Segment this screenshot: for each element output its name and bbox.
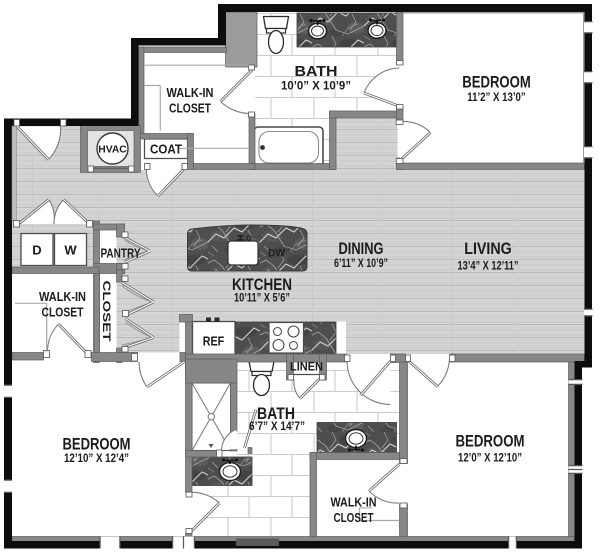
svg-text:10’0” X 10’9”: 10’0” X 10’9” bbox=[281, 81, 351, 93]
svg-text:WALK-IN: WALK-IN bbox=[39, 289, 86, 304]
svg-text:WALK-IN: WALK-IN bbox=[167, 85, 214, 100]
svg-text:11’2” X 13’0”: 11’2” X 13’0” bbox=[467, 90, 526, 104]
svg-text:DW: DW bbox=[268, 248, 286, 260]
svg-text:CLOSET: CLOSET bbox=[42, 305, 84, 320]
svg-text:COAT: COAT bbox=[150, 143, 182, 157]
svg-text:D: D bbox=[32, 243, 41, 258]
svg-text:W: W bbox=[64, 243, 77, 258]
svg-text:BEDROOM: BEDROOM bbox=[456, 432, 525, 451]
svg-text:12’10” X 12’4”: 12’10” X 12’4” bbox=[64, 453, 129, 465]
svg-text:BEDROOM: BEDROOM bbox=[462, 73, 531, 92]
svg-text:6’11” X 10’9”: 6’11” X 10’9” bbox=[334, 258, 388, 270]
svg-text:12’0” X 12’10”: 12’0” X 12’10” bbox=[458, 453, 522, 465]
svg-text:CLOSET: CLOSET bbox=[334, 510, 374, 525]
svg-text:CLOSET: CLOSET bbox=[100, 281, 112, 342]
svg-text:PANTRY: PANTRY bbox=[101, 246, 141, 261]
svg-text:LINEN: LINEN bbox=[290, 360, 323, 374]
svg-text:DINING: DINING bbox=[339, 240, 384, 258]
svg-text:6’7” X 14’7”: 6’7” X 14’7” bbox=[249, 421, 305, 433]
svg-text:BEDROOM: BEDROOM bbox=[63, 435, 131, 454]
svg-text:LIVING: LIVING bbox=[464, 240, 512, 258]
svg-text:13’4” X 12’11”: 13’4” X 12’11” bbox=[458, 261, 519, 273]
svg-text:WALK-IN: WALK-IN bbox=[331, 495, 377, 510]
svg-text:REF: REF bbox=[203, 335, 225, 349]
svg-text:10’11” X 5’6”: 10’11” X 5’6” bbox=[234, 293, 290, 305]
svg-text:BATH: BATH bbox=[295, 63, 338, 80]
svg-text:CLOSET: CLOSET bbox=[169, 101, 211, 116]
svg-text:HVAC: HVAC bbox=[98, 144, 127, 156]
svg-text:KITCHEN: KITCHEN bbox=[232, 276, 292, 294]
